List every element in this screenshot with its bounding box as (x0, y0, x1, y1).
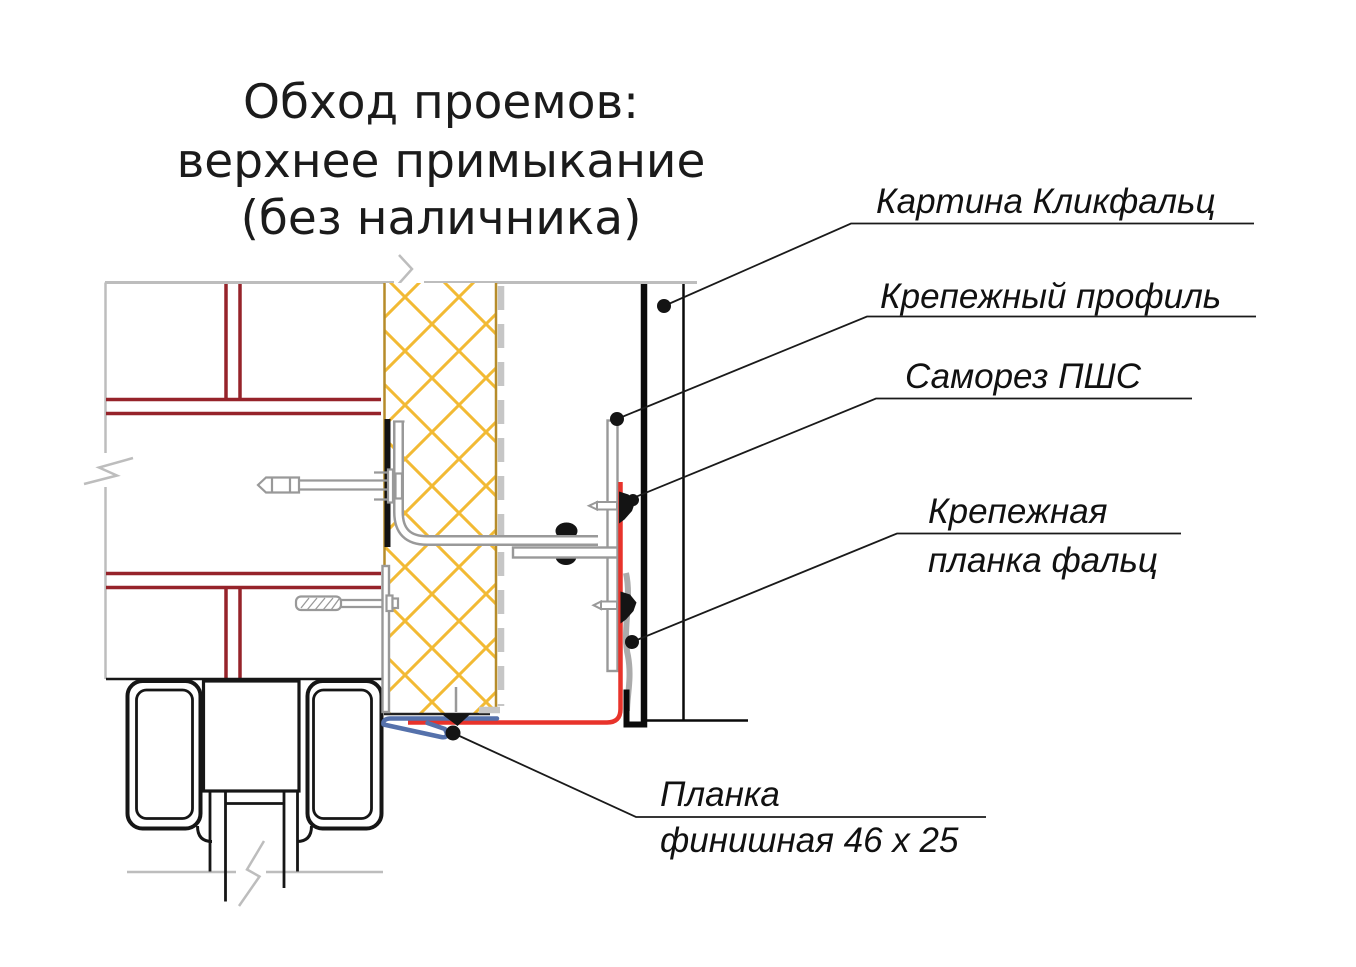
leader-line-screw (633, 399, 1192, 499)
anchor-sleeve (258, 478, 299, 493)
frame-gasket-left-outer (128, 681, 201, 829)
break-mark-bottom (239, 841, 264, 906)
break-mark-left (84, 458, 133, 484)
leader-dot-profile (610, 412, 624, 426)
anchor-shaft (299, 481, 389, 490)
leader-dot-clamp (625, 635, 639, 649)
callout-profile: Крепежный профиль (880, 277, 1221, 316)
callout-finish-line1: Планка (660, 775, 780, 814)
callout-screw: Саморез ПШС (905, 357, 1142, 396)
frame-profile-block (204, 681, 300, 791)
screw-shaft (601, 602, 617, 610)
callout-clamp-line1: Крепежная (928, 492, 1107, 531)
anchor-shaft (341, 600, 383, 607)
leader-dot-panel (657, 299, 671, 313)
anchor-dowel-upper (258, 470, 402, 503)
screw-tip (589, 502, 597, 510)
clickfalz-panel (627, 284, 749, 728)
profile-flange (513, 548, 618, 558)
callout-clamp-line2: планка фальц (928, 541, 1158, 580)
callout-panel: Картина Кликфальц (876, 182, 1215, 221)
anchor-sleeve (296, 597, 341, 611)
diagram-title-line2: верхнее примыкание (177, 134, 706, 189)
frame-corner-arcs (198, 826, 312, 842)
lower-bracket-leg (383, 566, 390, 712)
panel-outer-face (644, 284, 749, 721)
screw-tip (594, 602, 602, 610)
leader-dot-screw (627, 494, 639, 506)
anchor-nut (396, 474, 403, 499)
anchor-nut (393, 599, 399, 609)
screw-shaft (597, 502, 617, 510)
window-frame (106, 679, 383, 902)
diagram-title-line1: Обход проемов: (243, 75, 639, 130)
leader-dot-finish (446, 726, 461, 741)
construction-detail-diagram: Обход проемов: верхнее примыкание (без н… (0, 0, 1356, 967)
anchor-washer (388, 470, 393, 503)
callout-finish-line2: финишная 46 x 25 (660, 821, 959, 860)
diagram-title-line3: (без наличника) (241, 191, 642, 246)
hat-profile-vertical (608, 421, 618, 672)
